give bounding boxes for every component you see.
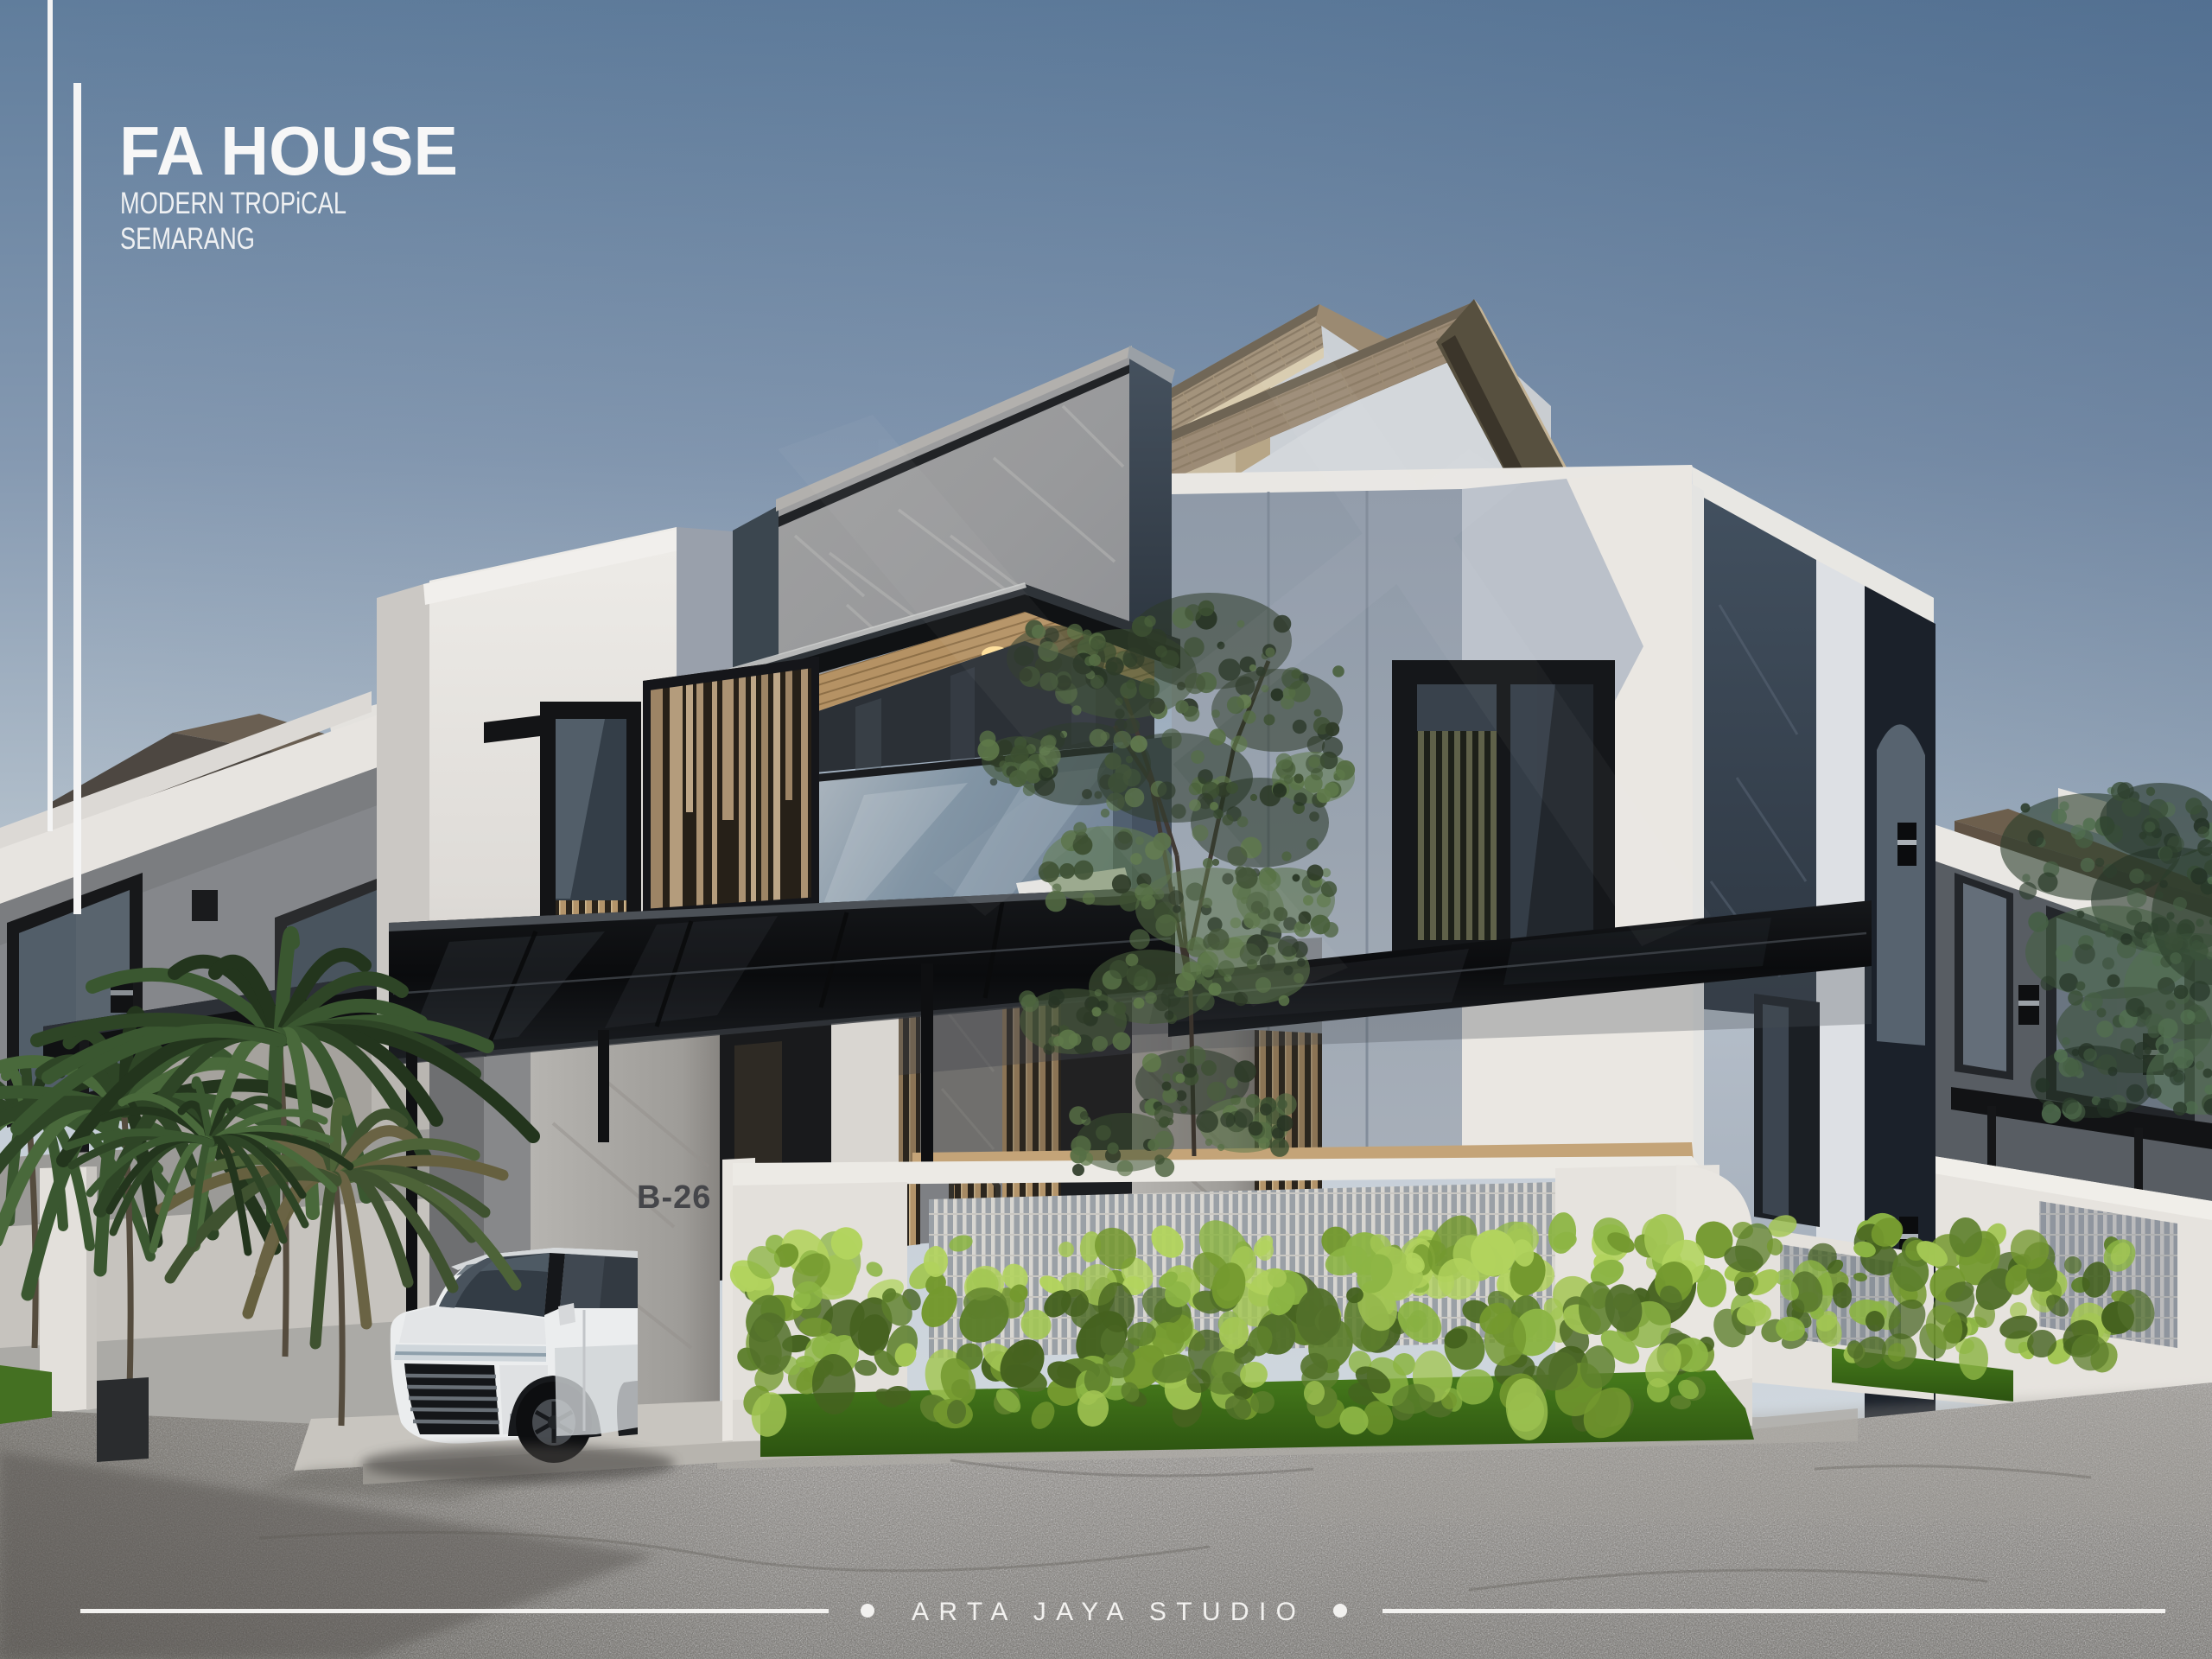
svg-text:B-26: B-26 xyxy=(637,1179,711,1216)
svg-text:MODERN TROPiCAL: MODERN TROPiCAL xyxy=(120,187,346,220)
svg-text:SEMARANG: SEMARANG xyxy=(120,222,255,256)
svg-text:FA HOUSE: FA HOUSE xyxy=(119,112,458,189)
